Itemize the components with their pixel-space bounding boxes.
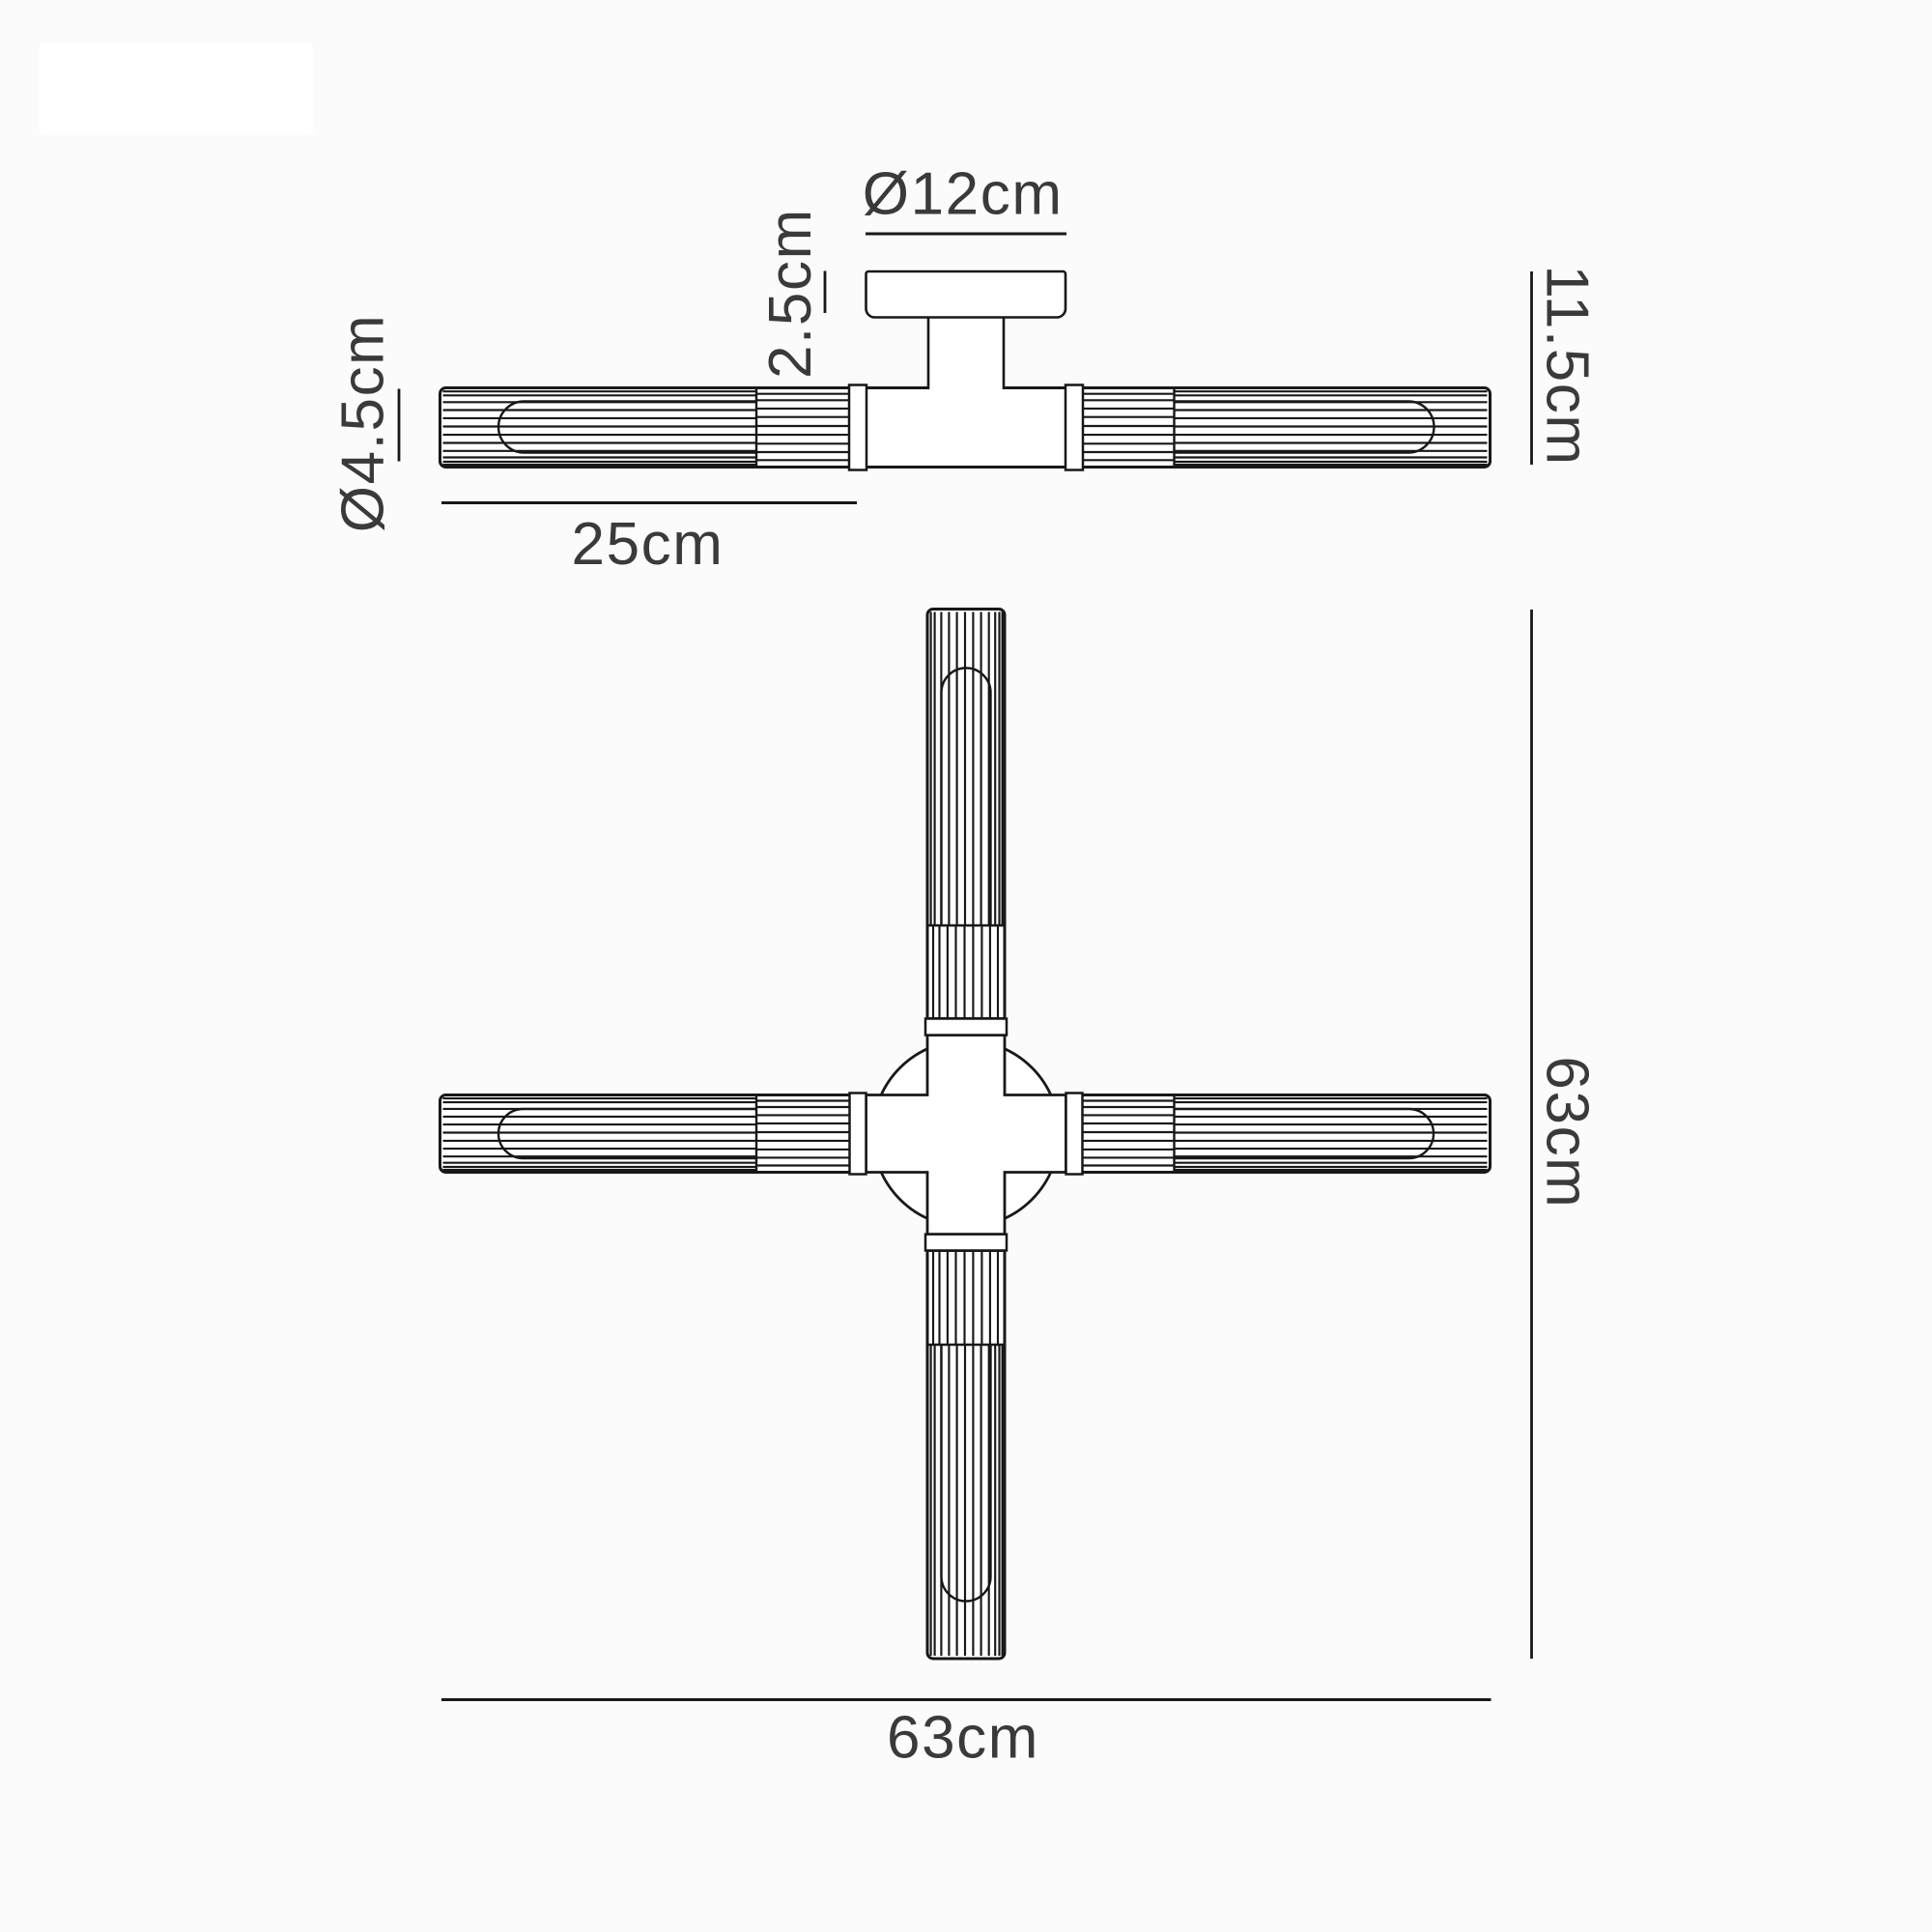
svg-text:25cm: 25cm: [571, 511, 724, 578]
svg-text:11.5cm: 11.5cm: [1534, 265, 1601, 466]
svg-text:Ø4.5cm: Ø4.5cm: [330, 314, 397, 533]
svg-text:2.5cm: 2.5cm: [757, 208, 824, 379]
svg-text:63cm: 63cm: [887, 1705, 1039, 1772]
svg-text:Ø12cm: Ø12cm: [863, 161, 1064, 228]
svg-text:63cm: 63cm: [1534, 1056, 1601, 1208]
